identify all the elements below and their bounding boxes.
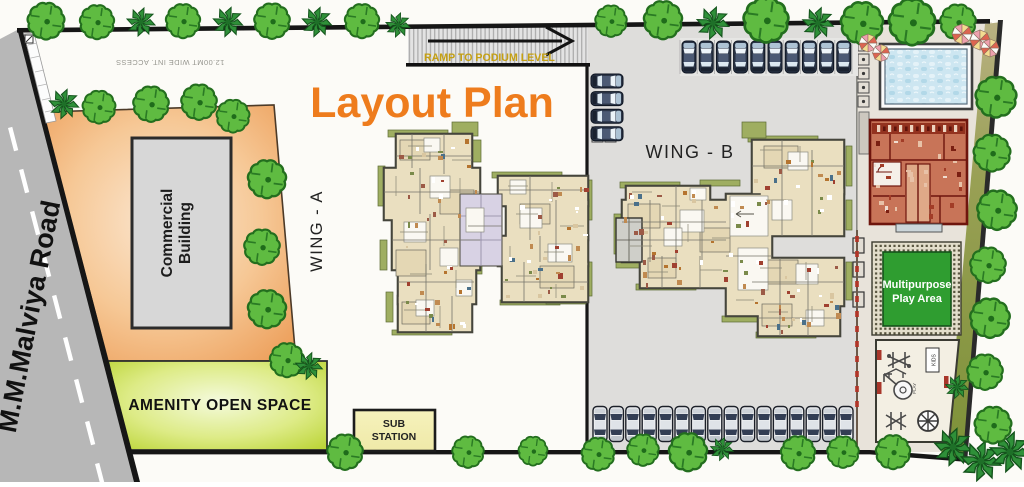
svg-text:Layout Plan: Layout Plan: [310, 79, 554, 127]
svg-text:PLAY: PLAY: [912, 383, 917, 394]
svg-text:Building: Building: [177, 202, 194, 264]
svg-text:WING - A: WING - A: [308, 190, 326, 272]
svg-text:KIDS: KIDS: [932, 354, 938, 366]
svg-text:STATION: STATION: [372, 431, 417, 443]
svg-text:Play Area: Play Area: [892, 293, 943, 305]
svg-text:WING - B: WING - B: [646, 142, 735, 162]
svg-text:RAMP TO PODIUM LEVEL: RAMP TO PODIUM LEVEL: [424, 52, 555, 64]
svg-text:Multipurpose: Multipurpose: [882, 279, 951, 291]
svg-text:12.00MT WIDE INT. ACCESS: 12.00MT WIDE INT. ACCESS: [116, 58, 225, 67]
svg-text:AMENITY OPEN SPACE: AMENITY OPEN SPACE: [128, 397, 311, 414]
svg-text:SUB: SUB: [383, 418, 406, 430]
svg-text:Commercial: Commercial: [159, 189, 176, 278]
